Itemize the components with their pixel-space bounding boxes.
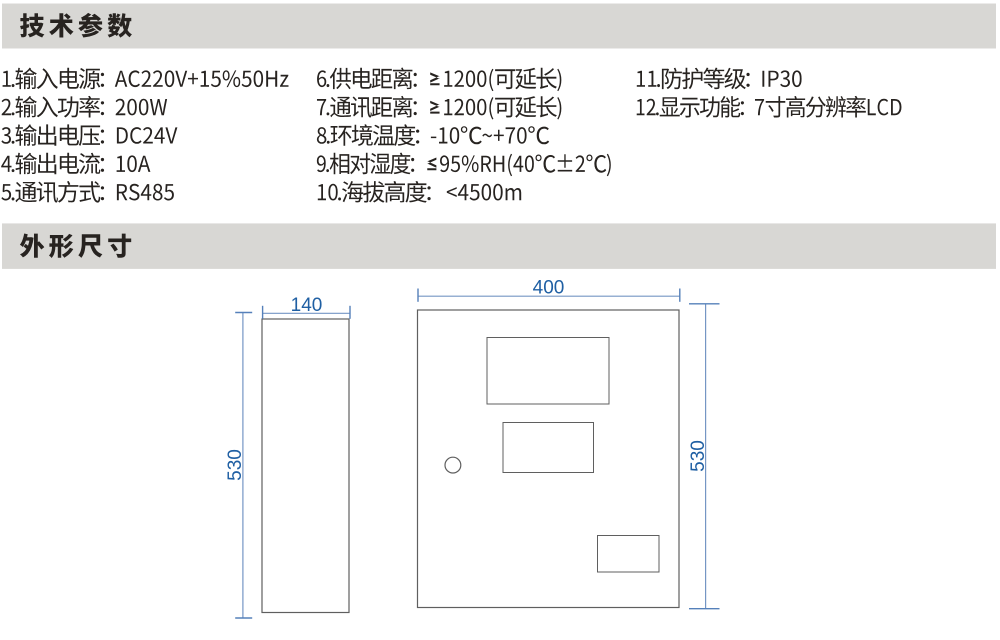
svg-text:140: 140 [291, 295, 323, 316]
svg-text:530: 530 [688, 440, 709, 472]
svg-text:400: 400 [533, 278, 565, 299]
svg-text:530: 530 [225, 449, 246, 481]
